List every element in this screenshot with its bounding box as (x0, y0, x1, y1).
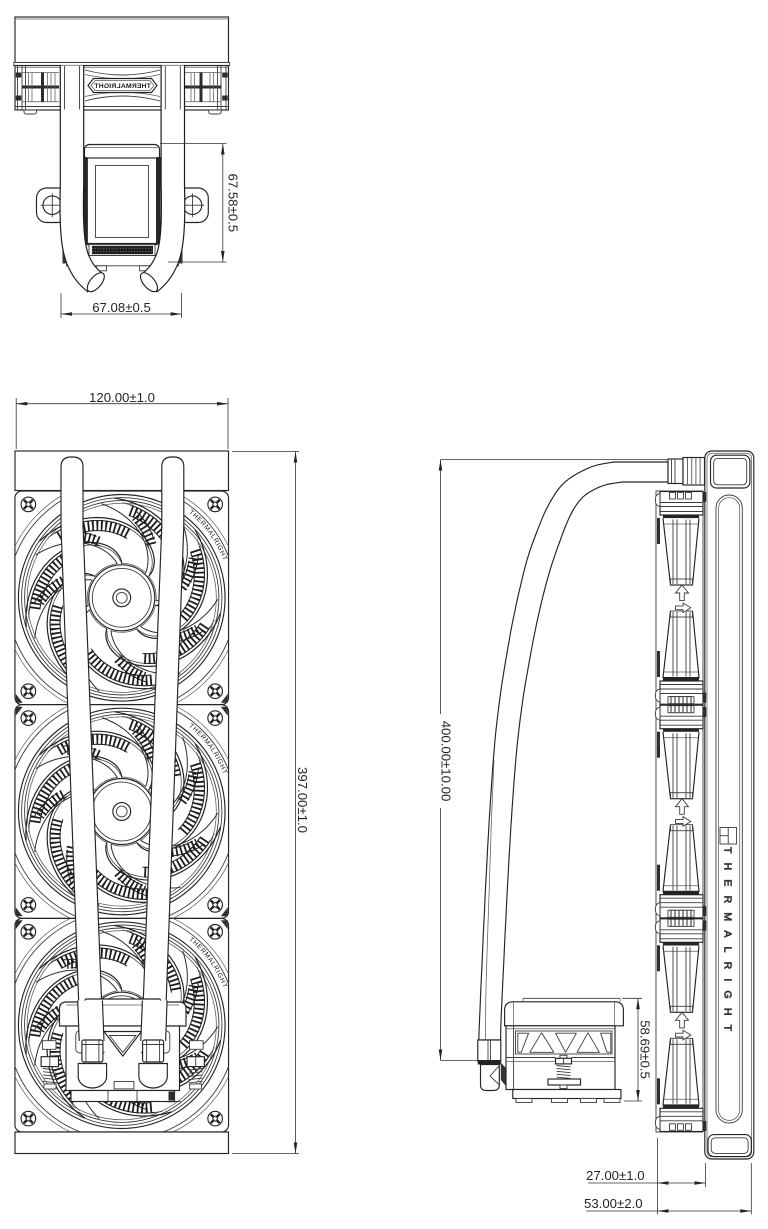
svg-text:THERMALRIGHT: THERMALRIGHT (722, 847, 734, 1040)
svg-text:67.58±0.5: 67.58±0.5 (226, 174, 241, 233)
svg-text:58.69±0.5: 58.69±0.5 (638, 1020, 653, 1079)
svg-text:27.00±1.0: 27.00±1.0 (586, 1168, 645, 1183)
svg-text:53.00±2.0: 53.00±2.0 (584, 1196, 643, 1211)
svg-text:400.00±10.00: 400.00±10.00 (439, 721, 454, 802)
svg-text:67.08±0.5: 67.08±0.5 (92, 300, 151, 315)
svg-text:THERMALRIGHT: THERMALRIGHT (93, 83, 150, 90)
svg-text:120.00±1.0: 120.00±1.0 (89, 390, 155, 405)
svg-text:397.00±1.0: 397.00±1.0 (295, 767, 310, 833)
